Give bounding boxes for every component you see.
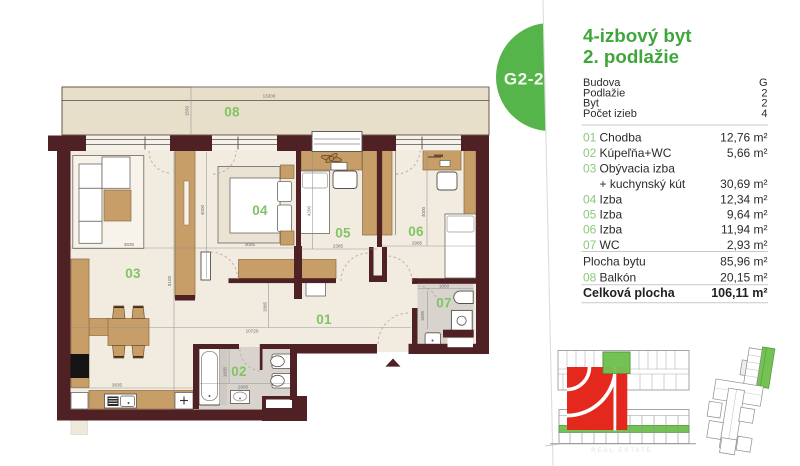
svg-text:08: 08 [224,105,240,120]
svg-text:Počet izieb: Počet izieb [583,108,637,120]
svg-text:13300: 13300 [263,94,276,99]
svg-text:2385: 2385 [333,244,344,249]
svg-text:REAL ESTATE: REAL ESTATE [591,448,653,454]
svg-text:04: 04 [583,192,597,206]
svg-text:2. podlažie: 2. podlažie [583,46,679,67]
svg-text:3835: 3835 [112,383,123,388]
svg-text:20,15 m²: 20,15 m² [720,271,767,285]
svg-text:07: 07 [436,296,452,311]
svg-text:3085: 3085 [245,242,256,247]
svg-text:4200: 4200 [307,205,312,216]
svg-text:02: 02 [583,146,597,160]
svg-text:11,94 m²: 11,94 m² [721,223,767,237]
svg-text:05: 05 [583,208,597,222]
svg-text:+ kuchynský kút: + kuchynský kút [600,177,686,191]
svg-text:2905: 2905 [238,385,249,390]
svg-text:07: 07 [583,238,597,252]
svg-text:1835: 1835 [223,366,228,377]
svg-text:12,34 m²: 12,34 m² [720,192,767,206]
svg-text:5,66 m²: 5,66 m² [727,146,768,160]
svg-text:03: 03 [125,266,141,281]
svg-text:Izba: Izba [600,208,623,222]
svg-text:9,64 m²: 9,64 m² [727,208,768,222]
svg-text:01: 01 [583,131,597,145]
svg-text:3835: 3835 [124,242,135,247]
svg-text:106,11 m²: 106,11 m² [711,286,767,300]
svg-text:Izba: Izba [600,192,623,206]
svg-text:Izba: Izba [600,223,623,237]
svg-text:01: 01 [316,312,332,327]
svg-text:WC: WC [600,238,620,252]
svg-text:08: 08 [583,271,597,285]
svg-text:G2-2: G2-2 [504,70,544,89]
svg-text:Chodba: Chodba [600,131,642,145]
svg-text:85,96 m²: 85,96 m² [720,255,767,269]
svg-text:4: 4 [761,108,767,120]
svg-text:04: 04 [252,203,268,218]
svg-text:03: 03 [583,162,597,176]
svg-text:12,76 m²: 12,76 m² [720,131,767,145]
svg-text:Celková plocha: Celková plocha [583,286,676,300]
svg-text:10720: 10720 [246,329,259,334]
svg-text:1885: 1885 [263,301,268,312]
svg-text:Obývacia izba: Obývacia izba [600,162,676,176]
svg-text:30,69 m²: 30,69 m² [720,177,767,191]
svg-text:8100: 8100 [167,275,172,286]
svg-text:1800: 1800 [439,284,450,289]
svg-text:4-izbový byt: 4-izbový byt [583,25,692,46]
svg-text:06: 06 [408,224,424,239]
svg-text:06: 06 [583,223,597,237]
svg-text:2985: 2985 [412,241,423,246]
svg-text:Balkón: Balkón [600,271,637,285]
svg-text:02: 02 [231,364,247,379]
svg-text:Kúpeľňa+WC: Kúpeľňa+WC [600,146,672,160]
svg-text:1695: 1695 [420,310,425,321]
svg-text:4000: 4000 [200,204,205,215]
svg-text:2,93 m²: 2,93 m² [727,238,768,252]
svg-text:1550: 1550 [185,105,190,116]
svg-text:Plocha bytu: Plocha bytu [583,255,646,269]
svg-text:4000: 4000 [421,206,426,217]
svg-text:05: 05 [335,226,351,241]
